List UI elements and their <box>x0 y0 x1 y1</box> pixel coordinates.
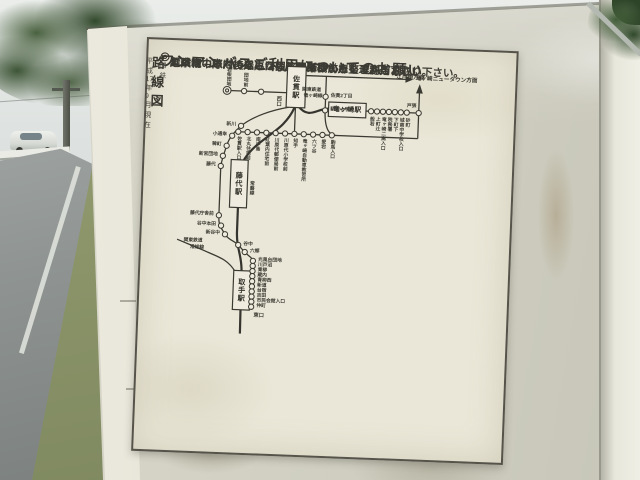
bus-stop-dot <box>249 294 254 299</box>
map-stop-label: 藤代 <box>206 163 216 168</box>
dir-label: 江戸崎方面 <box>396 75 424 82</box>
bus-stop-dot <box>238 123 243 128</box>
bus-stop-dot <box>222 232 227 237</box>
map-stop-label: 竜ヶ崎自動車教習所 <box>299 138 306 181</box>
map-stop-label: 税務署 <box>386 117 391 131</box>
bus-stop-dot <box>225 89 228 92</box>
exit-label: 東口 <box>253 313 264 319</box>
joso-line <box>176 239 237 272</box>
bus-stop-dot <box>398 110 403 115</box>
map-stop-label: 小通幸 <box>213 132 227 137</box>
bus-stop-dot <box>282 131 287 136</box>
map-stop-label: 駒馬入口 <box>328 139 334 158</box>
bus-stop-dot <box>229 133 234 138</box>
bus-stop-dot <box>224 143 229 148</box>
bus-stop-dot <box>301 131 306 136</box>
bus-stop-dot <box>218 163 223 168</box>
bus-stop-dot <box>249 279 254 284</box>
west-line <box>225 90 288 92</box>
map-stop-label: 若柴団地 <box>225 67 231 86</box>
station-label-sanuki: 佐貫駅 <box>291 75 302 100</box>
map-stop-label: 谷中本田 <box>197 222 216 228</box>
rail-label: 竜ヶ崎線 <box>303 94 322 100</box>
bus-stop-dot <box>250 268 255 273</box>
bus-stop-dot <box>249 299 254 304</box>
bus-stop-dot <box>404 110 409 115</box>
map-stop-label: 知手 <box>291 138 296 148</box>
bus-stop-dot <box>386 109 391 114</box>
map-stop-label: 藤代庁舎前 <box>190 211 214 217</box>
bus-stop-dot <box>380 109 385 114</box>
map-stop-label: 戸張 <box>407 104 417 109</box>
bus-stop-dot <box>218 223 223 228</box>
bus-stop-dot <box>329 133 334 138</box>
map-stop-label: 北丸住宅前 <box>244 136 250 160</box>
bus-stop-dot <box>368 109 373 114</box>
map-stop-label: 佐貫2丁目 <box>331 94 353 100</box>
map-stop-label: 仲町 <box>256 304 266 309</box>
map-stop-label: 団地前 <box>242 72 247 86</box>
rail-label: 常総線 <box>190 246 204 251</box>
bus-stop-dot <box>236 129 241 134</box>
map-stop-label: 上町辻 <box>374 117 379 131</box>
car-window <box>20 133 42 140</box>
map-stop-label: 新川 <box>226 123 236 128</box>
bus-stop-dot <box>241 88 246 93</box>
bus-stop-dot <box>248 304 253 309</box>
map-stop-label: 六ツ谷 <box>310 139 315 153</box>
bus-stop-dot <box>242 249 247 254</box>
map-stop-label: 南中島 <box>254 137 259 151</box>
station-connector <box>294 108 295 134</box>
bus-stop-dot <box>216 213 221 218</box>
map-stop-label: 稗町 <box>212 142 222 147</box>
edosaki-line <box>419 92 420 113</box>
station-label-toride: 取手駅 <box>236 278 247 303</box>
route-map-stage: 佐貫駅 竜ヶ崎駅 藤代駅 取手駅 団地前若柴団地佐貫2丁目馴柴小学校佐貫駅入口北… <box>150 50 509 344</box>
bus-stop-dot <box>220 153 225 158</box>
station-label-fujishiro: 藤代駅 <box>233 171 244 196</box>
map-stop-label: 紅葉内住宅前 <box>263 137 269 166</box>
rail-label: 関東鉄道 <box>183 238 202 244</box>
map-stop-label: 谷中 <box>243 242 253 247</box>
bus-stop-dot <box>310 132 315 137</box>
map-date: 平成17年9月現在 <box>144 56 155 130</box>
map-stop-label: 佐貫駅入口 <box>235 136 241 160</box>
bus-stop-dot <box>235 242 240 247</box>
bus-stop-dot <box>273 130 278 135</box>
rail-label: 常磐線 <box>248 181 253 195</box>
map-stop-label: 城南中学校入口 <box>397 117 403 151</box>
map-stop-label: 下町下 <box>392 117 397 131</box>
exit-label: 西口 <box>275 96 281 107</box>
bus-stop-dot <box>249 284 254 289</box>
bus-stop-dot <box>322 108 327 113</box>
bus-stop-dot <box>250 258 255 263</box>
map-stop-label: 新谷中 <box>205 231 219 236</box>
bus-stop-dot <box>250 273 255 278</box>
map-stop-label: 般若 <box>368 116 373 126</box>
bus-stop-dot <box>392 109 397 114</box>
corner-connector <box>418 113 419 139</box>
bus-stop-dot <box>258 89 263 94</box>
bus-stop-dot <box>254 130 259 135</box>
bus-stop-dot <box>249 289 254 294</box>
right-panel <box>599 0 640 480</box>
bus-notice-poster: ◎ワンマンバスご利用についてのお願い 1． 乗車は中扉（後扉）から、降車は前扉を… <box>131 37 519 465</box>
bus-stop-dot <box>292 131 297 136</box>
route-map: 佐貫駅 竜ヶ崎駅 藤代駅 取手駅 団地前若柴団地佐貫2丁目馴柴小学校佐貫駅入口北… <box>150 50 510 344</box>
roadside-photo: ◎ワンマンバスご利用についてのお願い 1． 乗車は中扉（後扉）から、降車は前扉を… <box>0 0 640 480</box>
post-seam <box>120 300 136 302</box>
bus-stop-dot <box>250 263 255 268</box>
map-stop-label: 川原代小学校前 <box>281 138 287 172</box>
edosaki-arrowhead <box>416 84 423 94</box>
newtown-line <box>306 76 405 80</box>
map-stop-label: 新宮団地 <box>199 152 218 158</box>
bus-stop-dot <box>264 130 269 135</box>
bus-stop-dot <box>323 94 328 99</box>
route-map-lines <box>150 50 509 344</box>
map-stop-label: 馴柴小学校 <box>330 108 354 114</box>
map-stop-label: 愛宕 <box>319 139 324 149</box>
map-stop-label: 竜ヶ崎二高入口 <box>379 117 385 151</box>
map-stop-label: 六郷 <box>250 250 260 255</box>
map-stop-label: 川原代郵便局前 <box>272 137 278 171</box>
bus-stop-dot <box>320 132 325 137</box>
exit-label: 東口 <box>310 68 321 74</box>
station-boxes <box>225 64 367 314</box>
bus-stop-dot <box>245 129 250 134</box>
bus-stop-dot <box>374 109 379 114</box>
map-stop-label: 砂町 <box>404 118 409 128</box>
bus-stop-dot <box>416 110 421 115</box>
